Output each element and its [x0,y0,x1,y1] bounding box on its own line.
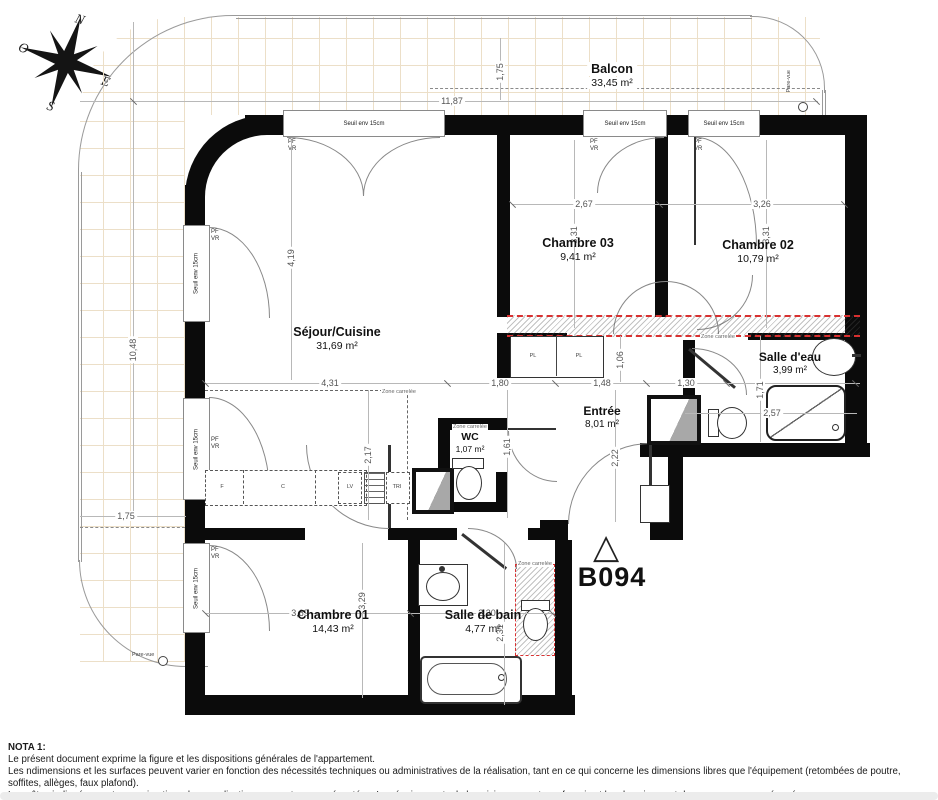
room-wc-area: 1,07 m² [456,444,485,454]
pare-vue-label: Pare-vue [132,652,154,658]
window-sill-label: Seuil env 15cm [343,121,384,127]
wall-right [845,115,867,455]
balcony-outline-left [78,172,82,562]
pare-vue-marker [798,102,808,112]
door-arc-sde [692,348,747,395]
room-balcon: Balcon 33,45 m² [587,62,637,89]
sejour-dashed-boundary-h [205,390,408,391]
door-arc-balcony-sejour-left [287,137,364,196]
zone-carrelee-label: Zone carrelée [700,334,736,340]
dim-hall-e: 1,61 [502,436,512,458]
door-arc-sdb [468,528,517,569]
sdb-bathtub-inner [427,663,507,695]
pare-vue-marker [158,656,168,666]
room-balcon-name: Balcon [587,62,637,76]
door-arc-balcony-ch03 [597,137,664,193]
window-sill-label: Seuil env 15cm [194,567,200,608]
footer-bar [0,792,938,800]
dim-balcony-depth: 1,75 [495,61,505,83]
window-sill-label: Seuil env 15cm [604,121,645,127]
balcony-outline-right [822,90,826,115]
floor-plan: N E S O Balcon 33,45 m² Seuil env [0,0,938,800]
dim-sde-height: 1,71 [755,379,765,401]
kitchen-divider [315,470,316,504]
room-ch01-name: Chambre 01 [297,608,369,622]
pare-vue-label: Pare-vue [786,70,792,92]
room-sejour-name: Séjour/Cuisine [293,325,381,339]
dim-hall-c: 1,30 [675,378,697,388]
sdb-sink-faucet [439,566,445,572]
room-ch02: Chambre 02 10,79 m² [722,238,794,265]
window-sill-label: Seuil env 15cm [194,428,200,469]
room-sde-area: 3,99 m² [759,365,821,376]
dim-hall-b: 1,48 [591,378,613,388]
wall-sde-bottom [640,443,870,457]
dim-ch02-width: 3,26 [751,199,773,209]
wc-toilet-bowl [456,466,482,500]
zone-carrelee-strip [507,315,860,337]
closet-label-pl: PL [576,353,583,359]
room-sdb: Salle de bain 4,77 m² [445,608,521,635]
kitchen-duct [412,468,454,514]
wall-sejour-ch03 [497,135,510,317]
room-ch01: Chambre 01 14,43 m² [297,608,369,635]
window-type-tag: PFVR [590,139,598,152]
door-leaf-wc [508,428,556,430]
room-ch03: Chambre 03 9,41 m² [542,236,614,263]
svg-text:S: S [45,98,56,114]
window-sejour-left-1: Seuil env 15cm [183,225,210,322]
window-sejour-top: Seuil env 15cm [283,110,445,137]
window-swing-sejour-1 [209,227,270,318]
dim-line [512,204,845,205]
kitchen-label-dishwasher: LV [347,484,353,490]
kitchen-label-fridge: F [220,484,223,490]
wall-hall-seg3 [497,333,510,381]
dim-sejour-width: 4,31 [319,378,341,388]
balcony-outline-top [236,15,752,19]
door-arc-balcony-sejour-right [363,137,440,196]
zone-carrelee-label: Zone carrelée [517,561,553,567]
zone-carrelee-label: Zone carrelée [381,389,417,395]
kitchen-label-tri: TRI [393,484,402,490]
dim-ch03-width: 2,67 [573,199,595,209]
window-sill-label: Seuil env 15cm [194,253,200,294]
room-ch02-area: 10,79 m² [722,253,794,265]
door-arc-wc [508,431,557,482]
sde-sink-faucet [852,354,861,357]
room-wc: WC 1,07 m² [456,431,485,454]
room-sde-name: Salle d'eau [759,350,821,364]
sdb-sink-basin [426,572,460,601]
window-sill-label: Seuil env 15cm [703,121,744,127]
unit-code: B094 [578,562,647,593]
sde-toilet-bowl [717,407,747,439]
room-sejour-area: 31,69 m² [293,340,381,352]
room-sdb-area: 4,77 m² [445,623,521,635]
room-sejour: Séjour/Cuisine 31,69 m² [293,325,381,352]
room-wc-name: WC [456,431,485,443]
window-ch02-top: Seuil env 15cm [688,110,760,137]
nota-line-1: Le présent document exprime la figure et… [8,754,934,766]
entree-duct [647,395,701,445]
window-ch01-left: Seuil env 15cm [183,543,210,633]
closet-label-pl: PL [530,353,537,359]
hall-closet-divider [556,336,557,376]
room-ch03-name: Chambre 03 [542,236,614,250]
room-entree-name: Entrée [583,404,620,418]
wall-entree-stub-right [650,520,683,540]
kitchen-divider [243,470,244,504]
nota-line-2: Les ndimensions et les surfaces peuvent … [8,766,934,790]
entree-closet [640,485,670,523]
dim-hall-d: 1,06 [615,349,625,371]
window-swing-ch01 [209,545,270,631]
balcony-dash-left [80,527,185,528]
room-sde: Salle d'eau 3,99 m² [759,350,821,376]
svg-text:N: N [72,10,87,28]
dim-balcony-width: 11,87 [439,96,465,106]
room-entree: Entrée 8,01 m² [583,404,620,430]
hall-closet [510,336,604,378]
door-arc-entrance [568,443,650,524]
window-ch03-top: Seuil env 15cm [583,110,667,137]
dim-sejour-lower: 2,17 [363,444,373,466]
dim-hall-a: 1,80 [489,378,511,388]
sde-shower-drain [832,424,839,431]
room-ch02-name: Chambre 02 [722,238,794,252]
room-sdb-name: Salle de bain [445,608,521,622]
dim-left-height: 10,48 [128,337,138,364]
wall-sdb-top [528,528,558,540]
dim-sde-width: 2,57 [761,408,783,418]
wall-entree-right [668,457,683,520]
room-balcon-area: 33,45 m² [587,77,637,89]
dim-left-width: 1,75 [115,511,137,521]
nota-title: NOTA 1: [8,742,934,754]
room-ch01-area: 14,43 m² [297,623,369,635]
wall-ch01-top-2 [388,528,457,540]
door-arc-balcony-ch02 [696,137,757,246]
kitchen-label-cooker: C [281,484,285,490]
dim-hall-f: 2,22 [610,447,620,469]
dim-line [133,22,134,516]
room-ch03-area: 9,41 m² [542,251,614,263]
entrance-triangle-icon: △ [593,530,619,564]
svg-text:O: O [17,39,31,56]
room-entree-area: 8,01 m² [583,419,620,430]
dim-sejour-height: 4,19 [286,247,296,269]
zone-carrelee-label: Zone carrelée [452,424,488,430]
wall-ch01-top-1 [205,528,305,540]
wall-sdb-right [555,540,572,700]
